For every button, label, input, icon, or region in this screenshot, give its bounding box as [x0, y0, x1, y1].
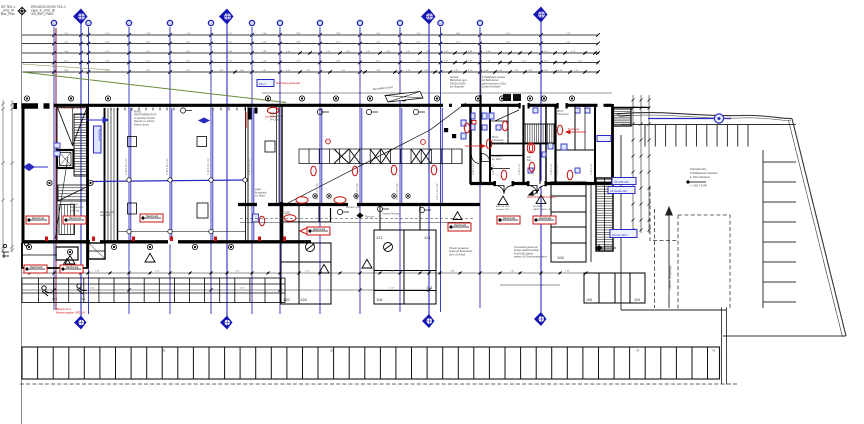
- svg-text:2,26 1,14: 2,26 1,14: [589, 164, 593, 175]
- svg-text:Laenge 8m: Laenge 8m: [100, 215, 112, 217]
- svg-text:Rauchmeld.: Rauchmeld.: [503, 217, 516, 220]
- svg-text:Rauchmeld.: Rauchmeld.: [32, 217, 45, 220]
- svg-text:lt. Plan Abstand: lt. Plan Abstand: [690, 175, 710, 179]
- svg-text:5,48 3,26 1,12: 5,48 3,26 1,12: [247, 158, 251, 175]
- svg-text:H 4,20m: H 4,20m: [270, 118, 279, 121]
- svg-text:Rauchmeld.: Rauchmeld.: [313, 228, 326, 231]
- svg-text:2,26 1,14: 2,26 1,14: [491, 164, 495, 175]
- svg-text:Rauchmeld.: Rauchmeld.: [146, 215, 159, 218]
- svg-text:2,26 1,14: 2,26 1,14: [471, 164, 475, 175]
- svg-text:Umkleide: Umkleide: [492, 156, 502, 158]
- svg-text:weitere UG Schutzmassnahme: weitere UG Schutzmassnahme: [514, 256, 548, 259]
- svg-text:Fluchtweg gebaeude: Fluchtweg gebaeude: [276, 81, 301, 85]
- svg-text:5,48 3,26 1,12: 5,48 3,26 1,12: [206, 158, 210, 175]
- svg-text:Fluchtweg: Fluchtweg: [568, 128, 580, 131]
- svg-text:50: 50: [330, 349, 334, 353]
- svg-text:114: 114: [424, 235, 431, 240]
- svg-text:2,26 1,14: 2,26 1,14: [555, 164, 559, 175]
- svg-text:+- 429.74 MN: +- 429.74 MN: [690, 184, 707, 188]
- svg-text:70: 70: [636, 349, 640, 353]
- svg-text:126: 126: [300, 297, 307, 302]
- svg-text:HAUPTHAUS 1,80: HAUPTHAUS 1,80: [533, 208, 552, 211]
- svg-text:Montagegrube: Montagegrube: [100, 211, 116, 214]
- svg-text:WARTUNG NUR AUSSEN: WARTUNG NUR AUSSEN: [527, 196, 556, 199]
- svg-text:8qm: 8qm: [527, 160, 532, 162]
- svg-text:Rauchmeld.: Rauchmeld.: [539, 217, 552, 220]
- svg-text:Bebauungsplan GRZ 0,8: Bebauungsplan GRZ 0,8: [56, 311, 85, 315]
- svg-text:Zufahrt Tiefgarage: Zufahrt Tiefgarage: [668, 265, 672, 290]
- svg-text:ca. 18qm: ca. 18qm: [492, 159, 502, 161]
- svg-text:Vordach 2,60: Vordach 2,60: [496, 208, 510, 211]
- svg-text:5,48 3,26 1,12: 5,48 3,26 1,12: [124, 158, 128, 175]
- svg-text:4,20 2,14 1,80: 4,20 2,14 1,80: [355, 183, 359, 200]
- svg-text:OK FFB 429: OK FFB 429: [614, 180, 629, 184]
- svg-text:ca. 45qm: ca. 45qm: [255, 195, 265, 198]
- svg-text:Rauchmeld.: Rauchmeld.: [454, 224, 467, 227]
- svg-text:2,26 1,14: 2,26 1,14: [517, 164, 521, 175]
- svg-text:104: 104: [634, 298, 640, 302]
- svg-text:120: 120: [283, 297, 290, 302]
- svg-text:EINGANG: EINGANG: [533, 205, 543, 208]
- svg-text:WC-H: WC-H: [557, 111, 564, 113]
- svg-text:108: 108: [557, 255, 564, 260]
- svg-text:Treppe+Terrasse: Treppe+Terrasse: [382, 213, 401, 216]
- svg-text:Rauchmeld.: Rauchmeld.: [30, 266, 43, 269]
- svg-text:129: 129: [80, 297, 85, 301]
- svg-text:Bas_Plan: Bas_Plan: [1, 12, 15, 16]
- svg-text:Zufahrt frei halten: Zufahrt frei halten: [482, 86, 501, 89]
- svg-text:WC-D: WC-D: [492, 137, 499, 139]
- svg-text:Flaeche 12qm: Flaeche 12qm: [492, 143, 507, 145]
- svg-text:75: 75: [712, 349, 716, 353]
- svg-text:Flur: Flur: [527, 156, 531, 159]
- svg-text:5,48 3,26 1,12: 5,48 3,26 1,12: [165, 158, 169, 175]
- svg-text:3 Personen: 3 Personen: [557, 113, 569, 116]
- svg-text:Rauchmeld.: Rauchmeld.: [66, 266, 79, 269]
- svg-text:Estrich besch.: Estrich besch.: [134, 123, 149, 126]
- svg-text:Vorraum 1.18: Vorraum 1.18: [346, 206, 361, 209]
- svg-text:Schnitt A: Schnitt A: [605, 245, 615, 248]
- svg-text:Rauchmeld.: Rauchmeld.: [69, 217, 82, 220]
- svg-text:als Ringerder: als Ringerder: [450, 86, 464, 89]
- svg-text:10% Stg.: 10% Stg.: [70, 209, 80, 212]
- svg-text:Brandwand: Brandwand: [98, 129, 101, 141]
- svg-text:2 Personen: 2 Personen: [492, 139, 504, 142]
- svg-text:UK Decke 432: UK Decke 432: [610, 189, 627, 193]
- svg-text:Rauchm.: Rauchm.: [365, 215, 376, 219]
- svg-text:ANSCHLUSS: ANSCHLUSS: [496, 205, 510, 208]
- svg-text:ohne UG Anteil: ohne UG Anteil: [449, 253, 466, 256]
- svg-text:128: 128: [52, 297, 57, 301]
- svg-text:4,20 2,14 1,80: 4,20 2,14 1,80: [435, 183, 439, 200]
- svg-text:Pos.1: Pos.1: [259, 82, 266, 86]
- svg-text:OK Gel 429.1: OK Gel 429.1: [612, 233, 628, 237]
- svg-text:105: 105: [586, 298, 592, 302]
- svg-text:45: 45: [162, 349, 166, 353]
- svg-text:121: 121: [376, 235, 383, 240]
- svg-text:118: 118: [376, 297, 383, 302]
- svg-text:Baugrenze lt.: Baugrenze lt.: [56, 307, 72, 311]
- svg-text:iLN_BxG_Plan2: iLN_BxG_Plan2: [31, 12, 54, 16]
- svg-text:2,26 1,14: 2,26 1,14: [549, 164, 553, 175]
